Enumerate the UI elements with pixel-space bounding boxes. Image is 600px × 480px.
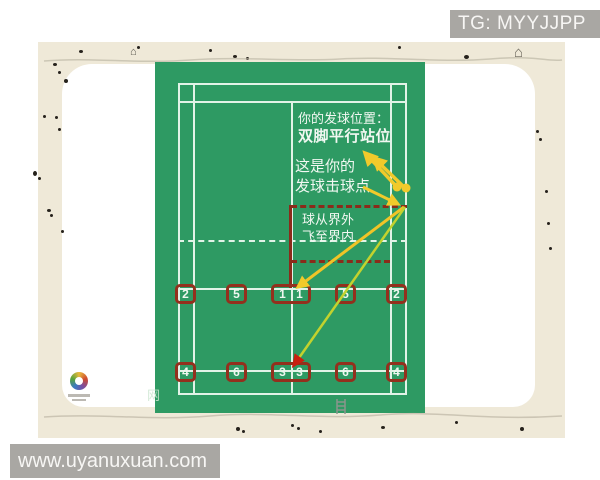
speck bbox=[61, 230, 64, 233]
speck bbox=[50, 214, 53, 217]
badminton-court: 你的发球位置： 双脚平行站位 这是你的 发球击球点 球从界外 飞至界内 2 5 … bbox=[155, 62, 425, 413]
house-icon: ⌂ bbox=[130, 46, 137, 58]
speck bbox=[38, 177, 41, 180]
position-number: 4 bbox=[389, 365, 404, 379]
speck bbox=[381, 426, 385, 429]
speck bbox=[539, 138, 542, 141]
logo-text-smudge bbox=[72, 399, 86, 401]
speck bbox=[398, 46, 401, 49]
maroon-dashed-top bbox=[291, 205, 407, 208]
speck bbox=[47, 209, 51, 212]
url-watermark: www.uyanuxuan.com bbox=[10, 444, 220, 478]
position-box-2-left-row1: 2 bbox=[175, 284, 196, 304]
speck bbox=[547, 222, 550, 225]
net-watermark-text: 网 bbox=[147, 385, 160, 404]
maroon-vertical-line bbox=[289, 205, 292, 288]
position-number: 1 bbox=[274, 287, 291, 301]
position-box-5-left-row1: 5 bbox=[226, 284, 247, 304]
speck bbox=[55, 116, 58, 119]
position-box-3-3-row2: 3 3 bbox=[271, 362, 311, 382]
hit-point-line2: 发球击球点 bbox=[295, 177, 370, 197]
hit-point-line1: 这是你的 bbox=[295, 157, 370, 177]
speck bbox=[53, 63, 57, 66]
speck bbox=[79, 50, 83, 53]
speck bbox=[319, 430, 322, 433]
house-icon: ⌂ bbox=[514, 44, 523, 61]
logo-center bbox=[75, 377, 83, 385]
hit-point-annotation: 这是你的 发球击球点 bbox=[295, 157, 370, 197]
position-number: 6 bbox=[338, 365, 353, 379]
court-sideline-left-inner bbox=[193, 83, 195, 395]
speck bbox=[209, 49, 212, 52]
court-dashed-line bbox=[178, 240, 407, 242]
speck bbox=[58, 71, 61, 74]
logo-text-smudge bbox=[68, 394, 90, 397]
position-number: 5 bbox=[229, 287, 244, 301]
trajectory-line1: 球从界外 bbox=[296, 211, 360, 228]
speck bbox=[242, 430, 245, 433]
position-box-4-right-row2: 4 bbox=[386, 362, 407, 382]
position-number: 4 bbox=[178, 365, 193, 379]
speck bbox=[291, 424, 294, 427]
position-number: 2 bbox=[389, 287, 404, 301]
speck bbox=[233, 55, 237, 58]
screenshot-stage: 你的发球位置： 双脚平行站位 这是你的 发球击球点 球从界外 飞至界内 2 5 … bbox=[0, 0, 600, 480]
position-box-5-right-row1: 5 bbox=[335, 284, 356, 304]
speck bbox=[246, 57, 249, 60]
trajectory-annotation: 球从界外 飞至界内 bbox=[296, 211, 360, 245]
speck bbox=[536, 130, 539, 133]
position-box-6-left-row2: 6 bbox=[226, 362, 247, 382]
serve-position-line2: 双脚平行站位 bbox=[298, 128, 391, 146]
maroon-dashed-bottom bbox=[291, 260, 390, 263]
speck bbox=[464, 55, 469, 59]
speck bbox=[545, 190, 548, 193]
colorful-hexagon-logo-icon bbox=[70, 372, 88, 390]
speck bbox=[297, 427, 300, 430]
position-box-1-1-row1: 1 1 bbox=[271, 284, 311, 304]
speck bbox=[455, 421, 458, 424]
speck bbox=[520, 427, 524, 431]
serve-position-annotation: 你的发球位置： 双脚平行站位 bbox=[298, 110, 391, 146]
position-number: 2 bbox=[178, 287, 193, 301]
speck bbox=[33, 171, 37, 176]
speck bbox=[58, 128, 61, 131]
speck bbox=[64, 79, 68, 83]
tg-watermark-text: TG: MYYJJPP bbox=[458, 13, 586, 35]
position-number: 5 bbox=[338, 287, 353, 301]
position-box-2-right-row1: 2 bbox=[386, 284, 407, 304]
url-watermark-text: www.uyanuxuan.com bbox=[18, 450, 207, 473]
position-box-4-left-row2: 4 bbox=[175, 362, 196, 382]
position-number: 3 bbox=[274, 365, 291, 379]
position-number: 1 bbox=[291, 287, 308, 301]
speck bbox=[549, 247, 552, 250]
position-number: 6 bbox=[229, 365, 244, 379]
position-number: 3 bbox=[291, 365, 308, 379]
speck bbox=[137, 46, 140, 49]
trajectory-line2: 飞至界内 bbox=[296, 228, 360, 245]
speck bbox=[236, 427, 240, 431]
position-box-6-right-row2: 6 bbox=[335, 362, 356, 382]
tg-watermark: TG: MYYJJPP bbox=[450, 10, 600, 38]
speck bbox=[43, 115, 46, 118]
serve-position-line1: 你的发球位置： bbox=[298, 110, 391, 128]
court-back-service-line bbox=[178, 101, 407, 103]
